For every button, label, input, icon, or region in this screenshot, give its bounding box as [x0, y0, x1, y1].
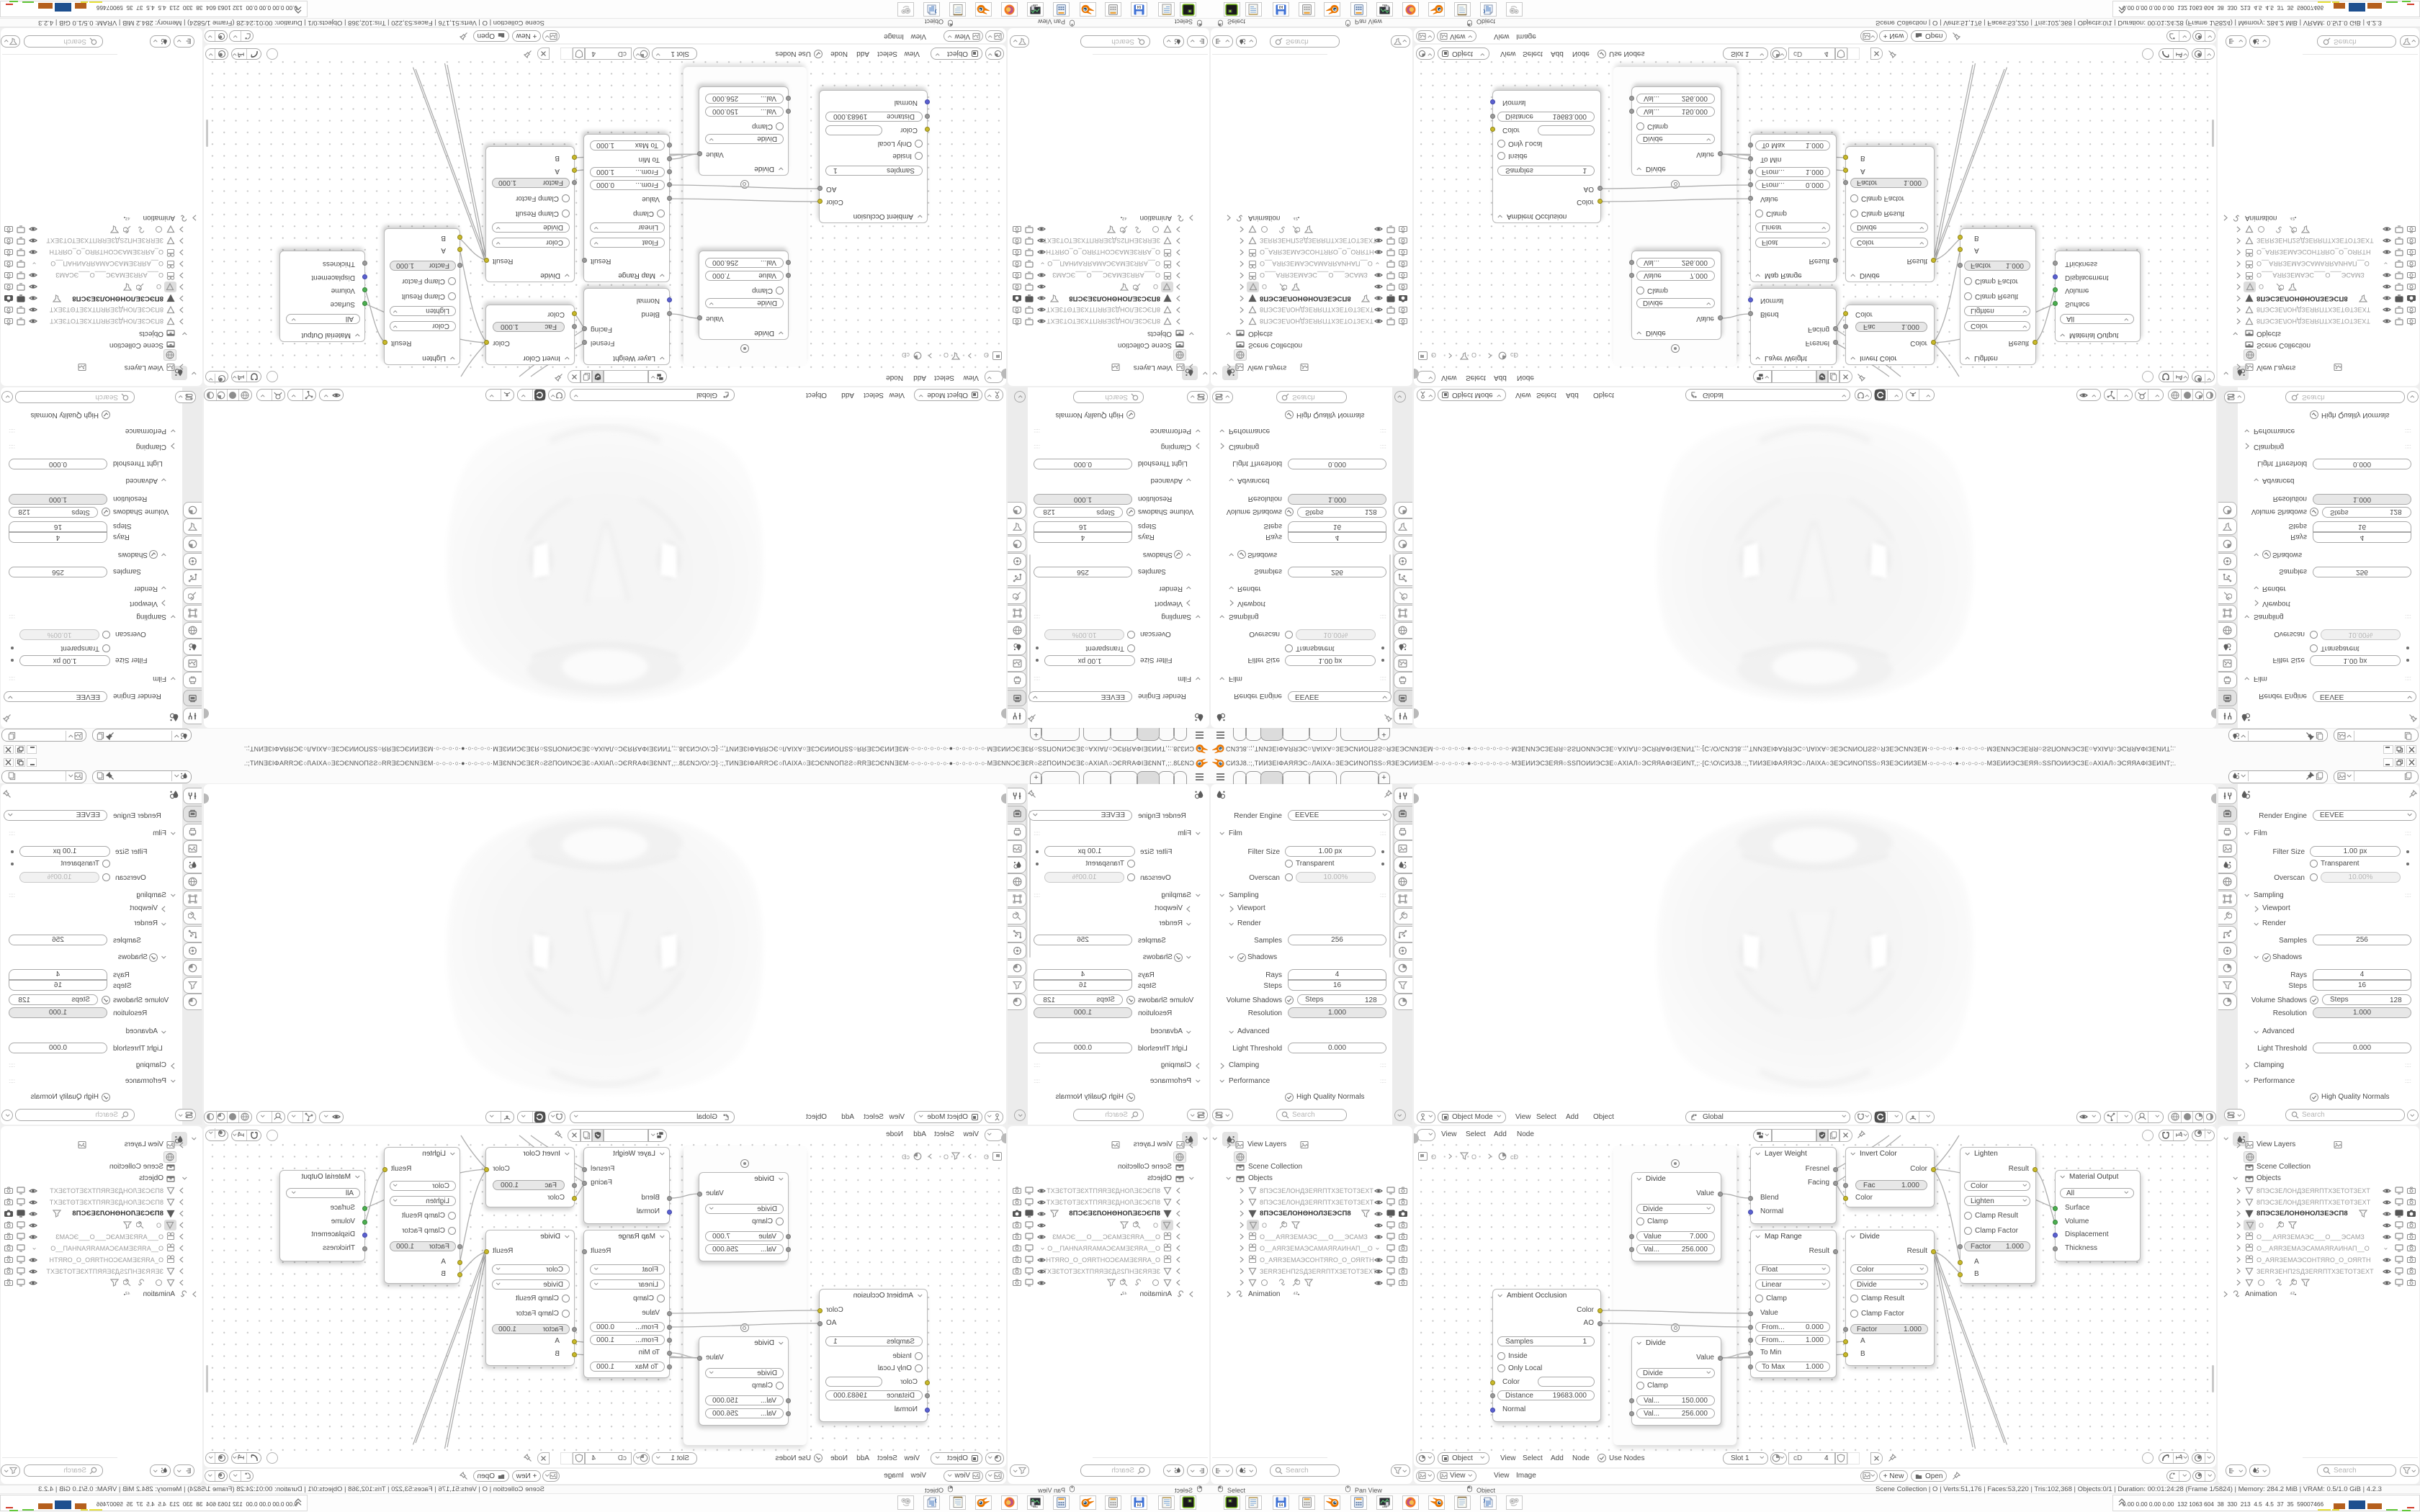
svg-text:64: 64 [1279, 1503, 1283, 1508]
svg-text:64: 64 [1279, 4, 1283, 9]
svg-text:64: 64 [1137, 4, 1142, 9]
svg-text:64: 64 [1137, 1503, 1142, 1508]
